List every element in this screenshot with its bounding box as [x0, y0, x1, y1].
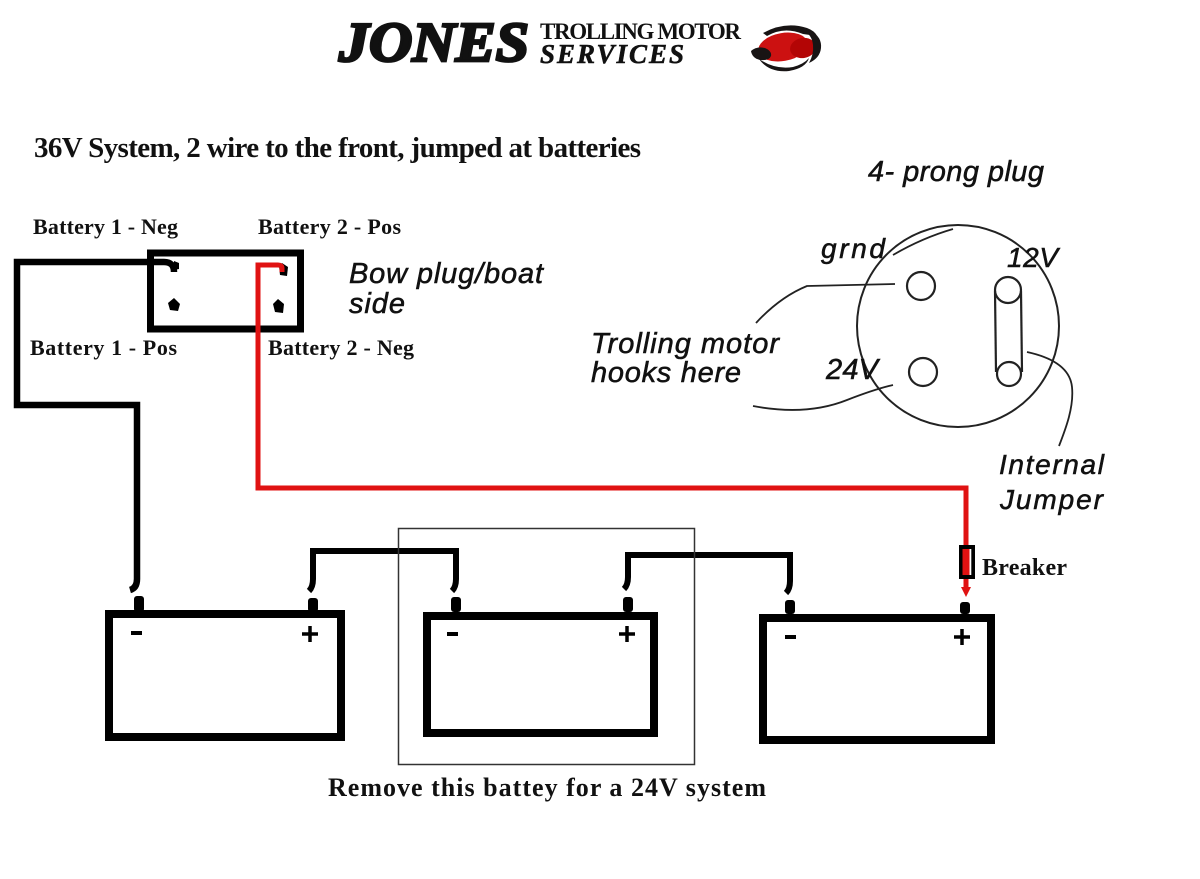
svg-text:hooks here: hooks here	[591, 357, 741, 389]
svg-text:Bow plug/boat: Bow plug/boat	[349, 258, 545, 290]
svg-text:4- prong plug: 4- prong plug	[868, 156, 1044, 188]
svg-text:Battery 1 - Neg: Battery 1 - Neg	[33, 214, 178, 239]
svg-text:Breaker: Breaker	[982, 555, 1067, 581]
svg-text:SERVICES: SERVICES	[540, 39, 684, 69]
svg-text:Battery 2 - Pos: Battery 2 - Pos	[258, 214, 401, 239]
svg-text:36V System, 2 wire to the fron: 36V System, 2 wire to the front, jumped …	[34, 132, 641, 164]
svg-text:Trolling motor: Trolling motor	[591, 328, 780, 360]
svg-text:side: side	[349, 288, 405, 320]
svg-text:12V: 12V	[1007, 242, 1060, 273]
svg-text:Internal: Internal	[999, 449, 1105, 480]
svg-text:JONES: JONES	[338, 12, 529, 74]
svg-text:24V: 24V	[825, 354, 881, 386]
svg-text:Battery 2 - Neg: Battery 2 - Neg	[268, 335, 414, 360]
svg-text:grnd: grnd	[821, 233, 886, 264]
svg-text:Jumper: Jumper	[999, 484, 1105, 515]
svg-text:Remove this battey for a 24V s: Remove this battey for a 24V system	[328, 773, 766, 802]
svg-text:Battery 1 - Pos: Battery 1 - Pos	[30, 335, 177, 360]
